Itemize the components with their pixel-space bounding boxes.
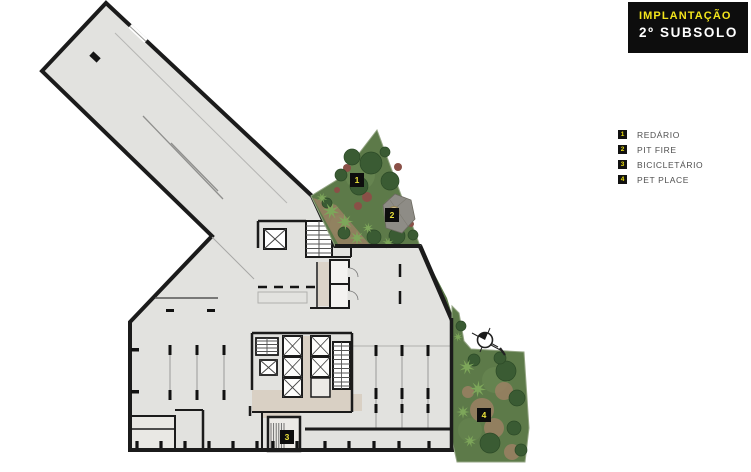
marker-3-bicicletario: 3 xyxy=(280,430,294,444)
legend-label-3: BICICLETÁRIO xyxy=(637,160,703,170)
legend-label-1: REDÁRIO xyxy=(637,130,680,140)
garden-bottom xyxy=(452,306,529,462)
title-block: IMPLANTAÇÃO 2º SUBSOLO xyxy=(628,2,748,53)
svg-text:2: 2 xyxy=(390,210,395,220)
plan-subtitle: 2º SUBSOLO xyxy=(639,25,748,40)
svg-text:1: 1 xyxy=(355,175,360,185)
legend-item-pet-place: 4 PET PLACE xyxy=(618,172,703,187)
page: 1 2 3 4 IMPLANTAÇÃO 2º SUBSOLO 1 REDÁRIO xyxy=(0,0,751,472)
legend-badge-3: 3 xyxy=(618,160,627,169)
legend-badge-4: 4 xyxy=(618,175,627,184)
svg-text:4: 4 xyxy=(482,410,487,420)
core xyxy=(250,333,362,418)
legend-item-pit-fire: 2 PIT FIRE xyxy=(618,142,703,157)
plan-title: IMPLANTAÇÃO xyxy=(639,10,748,22)
legend-item-redario: 1 REDÁRIO xyxy=(618,127,703,142)
svg-text:3: 3 xyxy=(285,432,290,442)
legend-label-4: PET PLACE xyxy=(637,175,689,185)
legend: 1 REDÁRIO 2 PIT FIRE 3 BICICLETÁRIO 4 PE… xyxy=(618,127,703,187)
marker-2-pit-fire: 2 xyxy=(385,208,399,222)
marker-4-pet-place: 4 xyxy=(477,408,491,422)
legend-label-2: PIT FIRE xyxy=(637,145,677,155)
legend-badge-2: 2 xyxy=(618,145,627,154)
marker-1-redario: 1 xyxy=(350,173,364,187)
legend-badge-1: 1 xyxy=(618,130,627,139)
legend-item-bicicletario: 3 BICICLETÁRIO xyxy=(618,157,703,172)
floor-plan-canvas: 1 2 3 4 xyxy=(0,0,751,472)
